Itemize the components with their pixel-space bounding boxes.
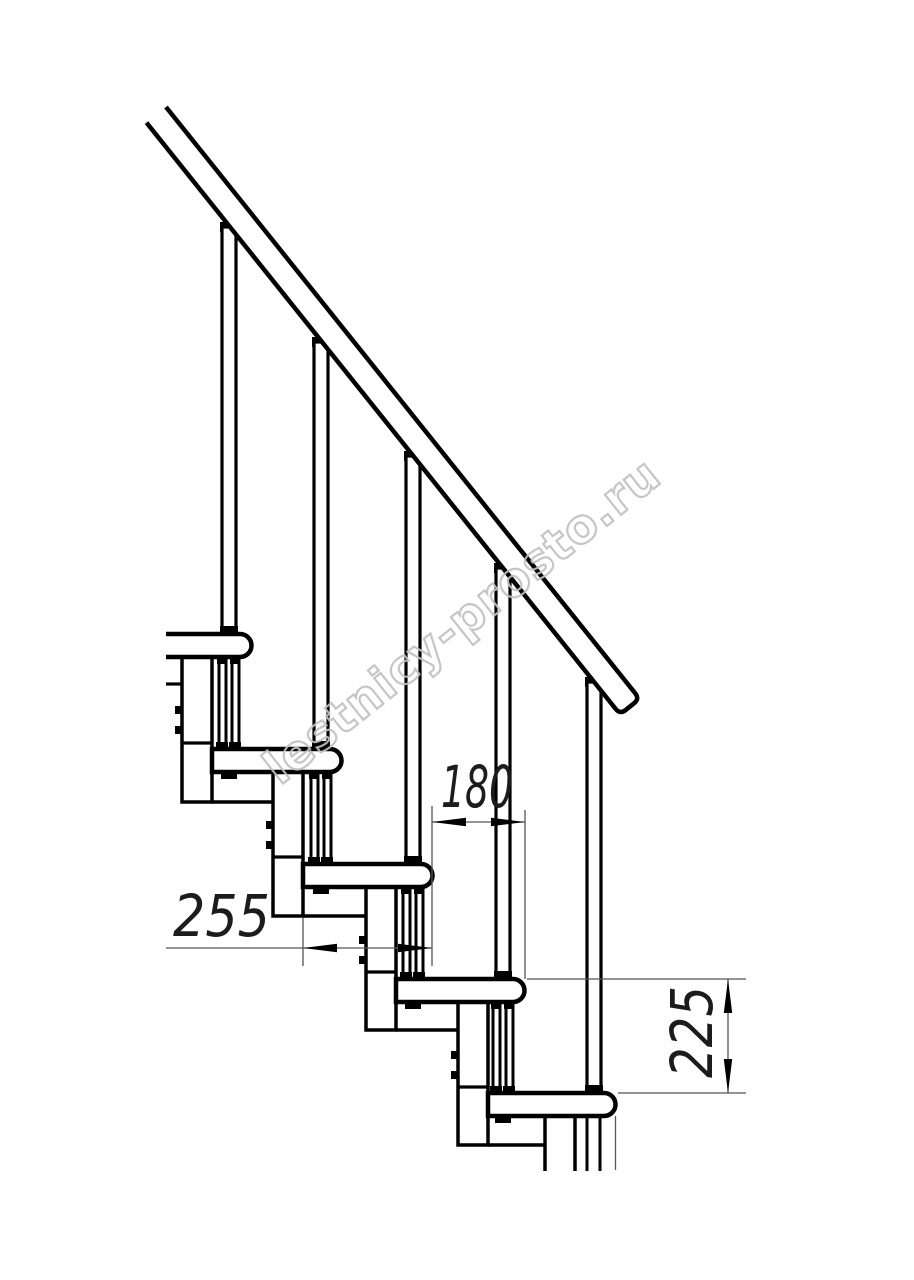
tread — [396, 979, 525, 1002]
baluster — [314, 342, 328, 749]
dimension-label-225: 225 — [658, 986, 726, 1078]
staircase-technical-drawing: 255 180 225 lestnicy-prosto.ru — [0, 0, 914, 1280]
module-column — [458, 1002, 488, 1145]
baluster — [587, 682, 601, 1093]
staircase-drawing-page: 255 180 225 lestnicy-prosto.ru — [0, 0, 914, 1280]
tread — [488, 1093, 616, 1116]
module-column — [182, 657, 212, 802]
dimension-label-180: 180 — [441, 753, 513, 821]
tread — [303, 864, 433, 887]
dimension-label-255: 255 — [173, 882, 270, 950]
dimension-step-rise: 225 — [527, 979, 746, 1093]
baluster — [222, 227, 236, 634]
module-column — [545, 1116, 575, 1171]
module-column — [366, 887, 396, 1030]
tread — [166, 634, 252, 657]
